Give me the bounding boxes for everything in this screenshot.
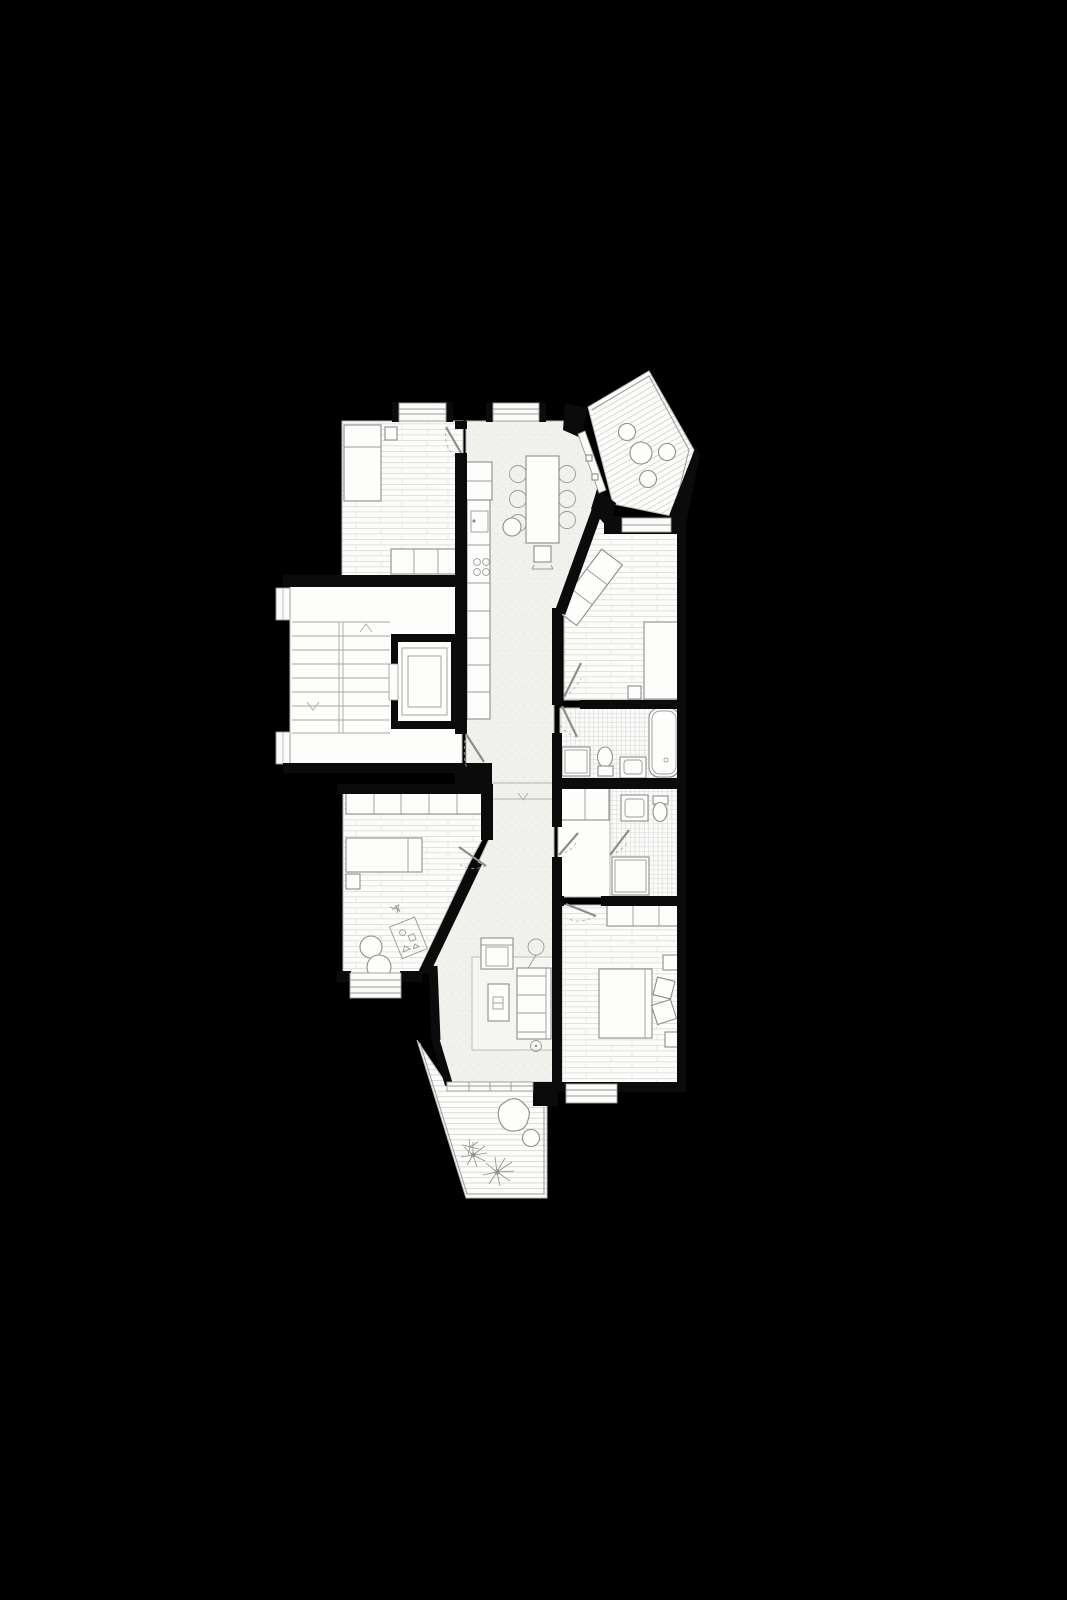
- window-bay-bedroom-1: [392, 402, 453, 422]
- wall-terrace-cap: [533, 1082, 558, 1106]
- balcony-chair: [640, 471, 657, 488]
- wardrobe: [607, 903, 684, 926]
- wall-kids-bay-cap-east: [400, 971, 422, 982]
- window-bay-kids-room: [350, 973, 401, 998]
- kitchen-counter: [467, 500, 490, 719]
- double-bed: [599, 969, 652, 1038]
- wall-kids-bay-cap-west: [337, 971, 351, 982]
- wall-bathroom-west: [552, 733, 562, 780]
- sofa: [517, 968, 551, 1039]
- sliding-door-living-terrace: [447, 1082, 533, 1091]
- wall-bedroom3-west: [552, 906, 562, 1084]
- wardrobe: [346, 792, 484, 814]
- pillow: [653, 977, 675, 999]
- wall-kids-east: [481, 792, 493, 840]
- balcony-chair: [619, 424, 636, 441]
- wall-kids-north: [337, 784, 493, 794]
- floor-plan-canvas: Apartment floor plan — black background …: [0, 0, 1067, 1600]
- bistro-table: [630, 442, 652, 464]
- nightstand: [663, 955, 678, 970]
- closet: [560, 788, 609, 820]
- bathtub: [649, 708, 679, 777]
- single-bed: [644, 622, 681, 699]
- nightstand: [385, 427, 397, 440]
- round-chair: [503, 518, 521, 536]
- wall-bedroom3-nw: [552, 896, 564, 906]
- toilet: [598, 747, 614, 776]
- wall-stair-north: [283, 575, 467, 587]
- double-bed: [344, 425, 381, 501]
- wardrobe: [391, 549, 461, 574]
- balcony-chair: [659, 444, 676, 461]
- wall-stair-south: [283, 763, 467, 773]
- single-bed: [346, 838, 422, 872]
- shower-tray: [562, 747, 590, 776]
- wall-living-west: [433, 966, 436, 1040]
- window-bay-hall: [486, 402, 546, 422]
- wall-bathroom-nw: [552, 700, 562, 705]
- wall-wc-west-upper: [552, 789, 562, 827]
- wall-bedroom2-west: [552, 608, 562, 703]
- wall-hall-west-top: [455, 421, 467, 429]
- elevator-door: [389, 664, 398, 700]
- nightstand: [628, 686, 641, 699]
- wall-bathroom-south: [552, 778, 684, 789]
- window-bedroom-2-north: [622, 518, 671, 532]
- side-table: [523, 1130, 540, 1147]
- coffee-table: [488, 984, 509, 1021]
- wc-shower-tray: [612, 857, 649, 895]
- wc-sink: [621, 795, 648, 821]
- wall-hall-west: [455, 453, 467, 734]
- elevator: [389, 634, 459, 729]
- wall-east-facade: [677, 525, 686, 1085]
- kitchen: [466, 462, 492, 719]
- vanity-sink: [620, 757, 646, 778]
- wall-bedroom3-north: [601, 896, 684, 906]
- dining-table: [526, 456, 559, 543]
- armchair: [481, 938, 513, 969]
- wall-bathroom-north: [580, 700, 684, 709]
- wc-toilet: [653, 796, 668, 822]
- faucet: [472, 519, 475, 522]
- floor-plan-svg: Apartment floor plan — black background …: [0, 0, 1067, 1600]
- window-bay-bedroom-3: [566, 1084, 617, 1103]
- plant-stem: [535, 1045, 537, 1047]
- elevator-interior: [398, 642, 451, 721]
- nightstand: [346, 874, 360, 889]
